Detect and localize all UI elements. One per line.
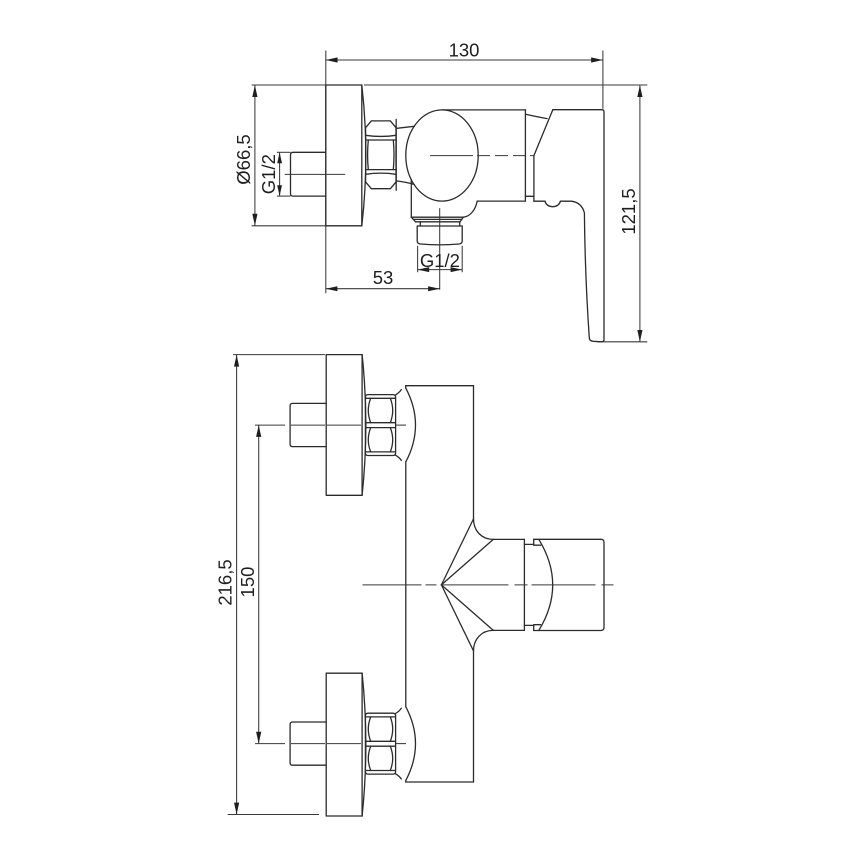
svg-text:G1/2: G1/2	[258, 154, 279, 194]
svg-text:150: 150	[237, 567, 258, 598]
svg-text:130: 130	[449, 40, 480, 61]
svg-text:Ø66,5: Ø66,5	[233, 134, 254, 184]
svg-text:216,5: 216,5	[214, 559, 235, 605]
svg-text:53: 53	[373, 267, 394, 288]
svg-text:121,5: 121,5	[618, 188, 639, 234]
svg-text:G1/2: G1/2	[420, 250, 460, 271]
